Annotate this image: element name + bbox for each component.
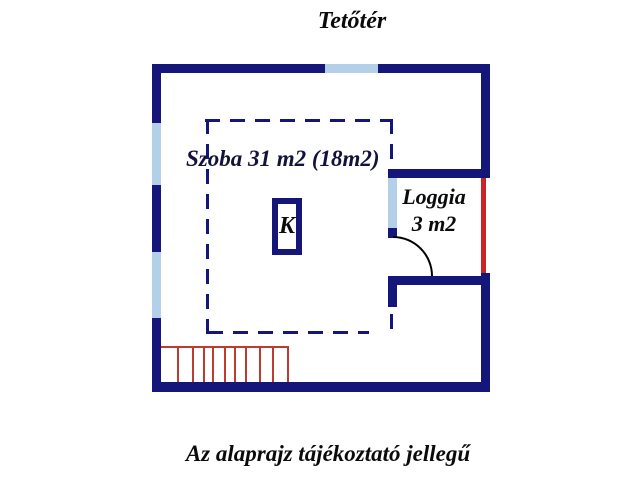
- stair-step: [245, 346, 247, 382]
- loggia-door-glass: [388, 178, 397, 228]
- wall-stub-below-loggia: [388, 285, 397, 307]
- disclaimer-text: Az alaprajz tájékoztató jellegű: [186, 441, 470, 467]
- stair-step: [234, 346, 236, 382]
- dashed-line-right-lower: [390, 314, 393, 334]
- wall-right-upper: [481, 64, 490, 177]
- page-title: Tetőtér: [318, 8, 386, 35]
- stair-step: [287, 346, 289, 382]
- dashed-line-bottom: [208, 331, 369, 334]
- stair-step: [177, 346, 179, 382]
- stair-step: [272, 346, 274, 382]
- floorplan-canvas: Tetőtér K Szoba 31 m2 (18m2): [0, 0, 640, 480]
- window-left-lower: [152, 252, 161, 318]
- stair-step: [203, 346, 205, 382]
- window-left-upper: [152, 123, 161, 185]
- stair-step: [192, 346, 194, 382]
- door-swing-arc: [393, 236, 433, 276]
- stair-step: [212, 346, 214, 382]
- wall-top: [152, 64, 490, 73]
- wall-bottom: [152, 382, 490, 392]
- room-label: Szoba 31 m2 (18m2): [186, 146, 380, 172]
- stair-step: [259, 346, 261, 382]
- wall-right-lower: [481, 273, 490, 392]
- loggia-name: Loggia: [402, 183, 466, 210]
- loggia-railing: [481, 177, 486, 273]
- loggia-area: 3 m2: [402, 210, 466, 237]
- wall-left: [152, 64, 161, 392]
- stair-step: [224, 346, 226, 382]
- chimney-label: K: [279, 213, 295, 240]
- chimney-box: K: [272, 198, 302, 255]
- loggia-wall-bottom: [388, 276, 490, 285]
- loggia-wall-top: [388, 169, 490, 178]
- window-top: [325, 64, 378, 73]
- dashed-line-right-upper: [390, 119, 393, 170]
- loggia-label: Loggia 3 m2: [402, 183, 466, 237]
- dashed-line-top: [205, 119, 392, 122]
